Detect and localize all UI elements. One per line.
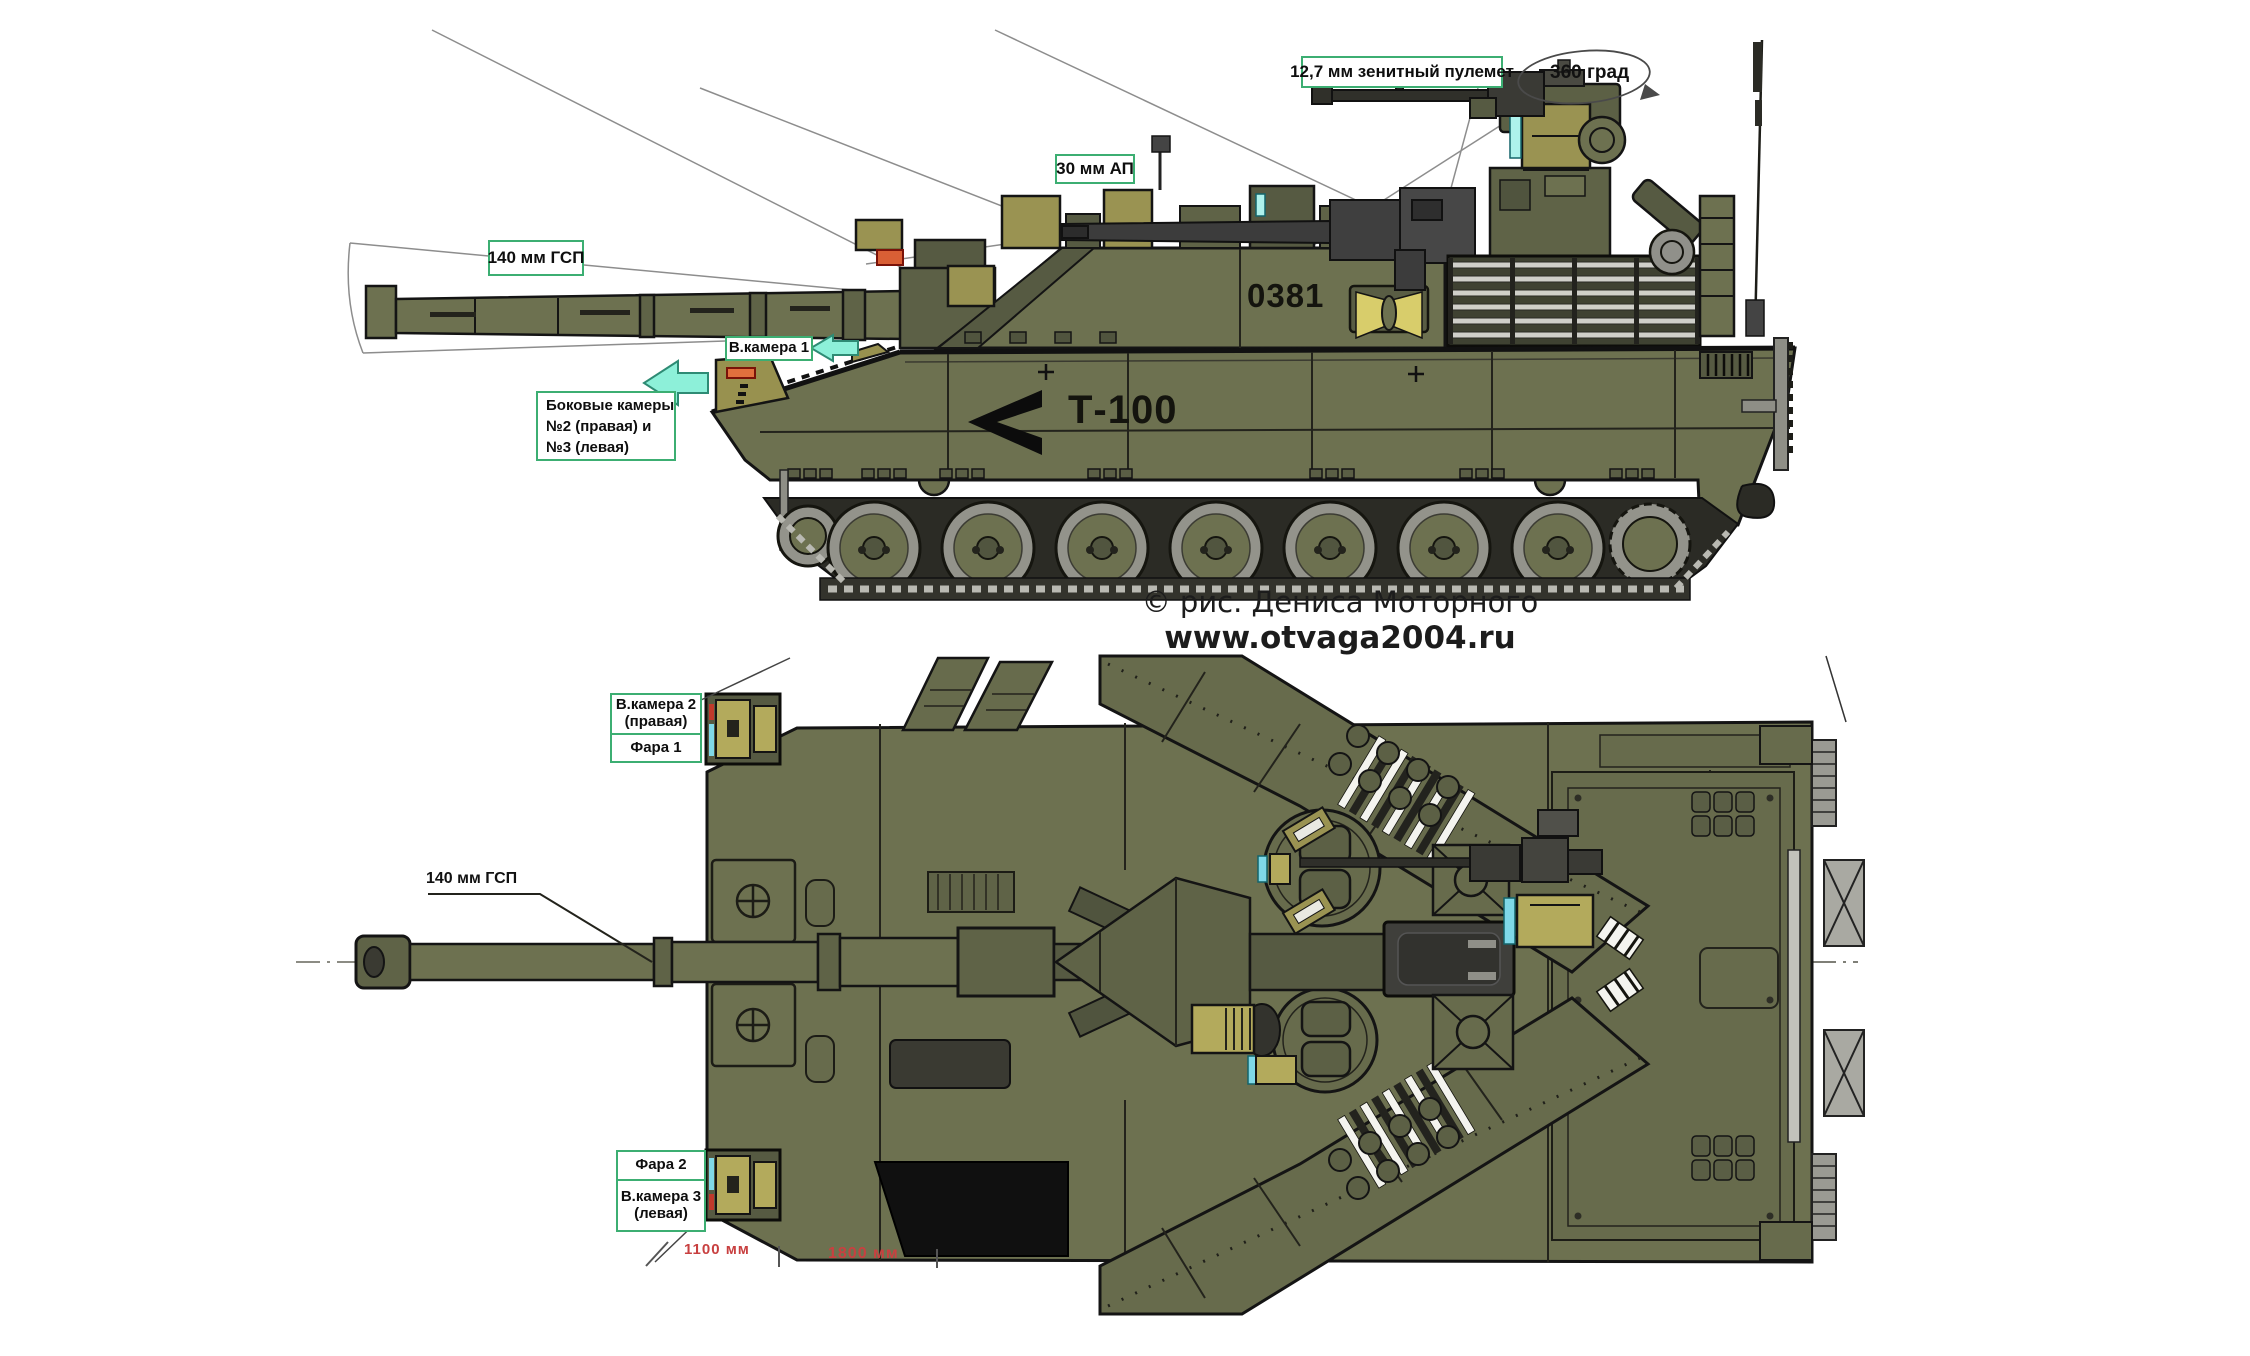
label-machine-gun: 12,7 мм зенитный пулемет (1301, 56, 1503, 88)
front-right-camera-housing (706, 694, 780, 764)
running-gear (764, 470, 1738, 600)
side-view-drawing (348, 30, 1795, 600)
label-rotation-360: 360 град (1550, 62, 1629, 84)
main-gun-barrel (366, 286, 905, 340)
label-autocannon: 30 мм АП (1055, 154, 1135, 184)
credit-author: © рис. Дениса Моторного (1050, 585, 1630, 619)
label-camera-2: В.камера 2 (правая) (610, 693, 702, 735)
label-headlight-1: Фара 1 (610, 733, 702, 763)
antenna (1746, 40, 1764, 336)
tank-drawing (0, 0, 2250, 1356)
turret-number: 0381 (1247, 277, 1324, 315)
dimension-1800: 1800 мм (828, 1245, 899, 1263)
breech-block (1384, 922, 1514, 996)
turret-emblem (1350, 286, 1428, 338)
label-main-gun-top: 140 мм ГСП (426, 870, 517, 888)
label-side-cameras: Боковые камеры №2 (правая) и №3 (левая) (536, 391, 676, 461)
sight-box-right (1504, 895, 1593, 947)
tank-blueprint-page: 12,7 мм зенитный пулемет 360 град 30 мм … (0, 0, 2250, 1356)
label-camera-1: В.камера 1 (725, 336, 813, 361)
x-box-lower (1433, 995, 1513, 1069)
sight-box-left-a (1258, 854, 1290, 884)
label-headlight-2: Фара 2 (616, 1150, 706, 1181)
top-view-drawing (296, 656, 1864, 1314)
label-main-gun-side: 140 мм ГСП (488, 240, 584, 276)
label-camera-3: В.камера 3 (левая) (616, 1179, 706, 1232)
front-left-camera-housing (706, 1150, 780, 1220)
hull-side (712, 338, 1795, 525)
hull-name-marking: Т-100 (1068, 388, 1178, 433)
spare-wheel (1650, 230, 1694, 274)
credit-block: © рис. Дениса Моторного www.otvaga2004.r… (1050, 585, 1630, 656)
dimension-1100: 1100 мм (684, 1241, 750, 1258)
front-camera-lens (727, 368, 755, 378)
credit-website: www.otvaga2004.ru (1050, 620, 1630, 656)
